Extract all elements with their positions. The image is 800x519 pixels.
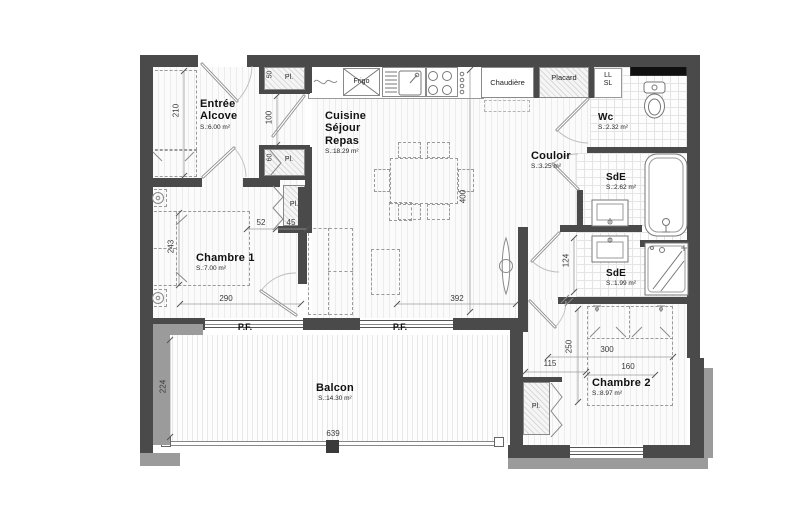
closet-label: Pl. [281, 74, 297, 82]
chair [427, 204, 450, 220]
chair [374, 169, 390, 192]
room-name: SdE [606, 172, 636, 183]
room-label-wc: Wc S.:2.32 m² [598, 112, 628, 131]
chair [427, 142, 450, 158]
wall [690, 358, 704, 458]
dim-392: 392 [442, 294, 472, 303]
dim-210: 210 [172, 96, 181, 126]
room-label-chambre2: Chambre 2 S.:8.97 m² [592, 377, 651, 397]
room-area: S.:14.30 m² [316, 395, 354, 402]
wall [558, 297, 688, 304]
room-label-entree: Entrée Alcove S.:6.00 m² [200, 98, 237, 131]
chair [398, 204, 421, 220]
dim-290: 290 [211, 294, 241, 303]
wall [510, 318, 523, 448]
wall [587, 147, 687, 153]
wall [523, 377, 562, 382]
dim-243: 243 [167, 232, 176, 262]
room-name: Alcove [200, 110, 237, 122]
room-name: Couloir [531, 150, 571, 162]
wall [150, 55, 198, 67]
window-pf-label: P.F. [230, 322, 260, 332]
room-name: Entrée [200, 98, 237, 110]
fridge-label: Frigo [345, 78, 378, 86]
dim-639: 639 [318, 429, 348, 438]
room-area: S.:2.62 m² [606, 184, 636, 191]
dim-300: 300 [592, 345, 622, 354]
window-pf-label: P.F. [385, 322, 415, 332]
washer-label: LL [594, 72, 622, 80]
room-name: SdE [606, 268, 636, 279]
wall [259, 149, 264, 178]
room-label-cuisine: Cuisine Séjour Repas S.:18.29 m² [325, 110, 366, 155]
wall [259, 90, 310, 94]
coffee-table [371, 249, 400, 295]
wall [247, 55, 700, 67]
room-area: S.:8.97 m² [592, 390, 651, 397]
wall [560, 225, 642, 232]
wall [243, 178, 280, 187]
room-name: Repas [325, 135, 366, 147]
floor-plan: Entrée Alcove S.:6.00 m² Cuisine Séjour … [0, 0, 800, 519]
bed-entree-foot [150, 150, 197, 177]
closet-label: Pl. [528, 403, 544, 411]
dim-52: 52 [246, 218, 276, 227]
outer-band [508, 458, 708, 469]
dim-100: 100 [265, 103, 274, 133]
wall [453, 318, 510, 330]
dim-45: 45 [276, 218, 306, 227]
dim-250: 250 [565, 332, 574, 362]
placard-label: Placard [539, 74, 589, 82]
room-area: S.:2.32 m² [598, 124, 628, 131]
outer-band [140, 453, 180, 466]
room-name: Cuisine [325, 110, 366, 122]
wall [640, 240, 687, 247]
dim-50: 50 [267, 60, 274, 90]
bed-chambre1-pillow-line [176, 211, 177, 286]
bed-chambre2-head-line [587, 338, 673, 339]
wall [303, 318, 360, 330]
room-label-sde2: SdE S.:1.99 m² [606, 268, 636, 287]
dim-224: 224 [159, 372, 168, 402]
dim-400: 400 [459, 182, 468, 212]
railing-post-center [326, 440, 339, 453]
room-name: Chambre 2 [592, 377, 651, 389]
room-label-couloir: Couloir S.:3.25 m² [531, 150, 571, 170]
wall [687, 55, 700, 358]
outer-band [704, 368, 713, 458]
room-label-chambre1: Chambre 1 S.:7.00 m² [196, 252, 255, 272]
dim-115: 115 [535, 359, 565, 368]
dim-60: 60 [267, 143, 274, 173]
wall [140, 178, 202, 187]
room-label-sde1: SdE S.:2.62 m² [606, 172, 636, 191]
chaudiere-open-front [484, 100, 530, 112]
room-area: S.:1.99 m² [606, 280, 636, 287]
wall [577, 190, 583, 232]
closet-label: Pl. [281, 156, 297, 164]
room-area: S.:3.25 m² [531, 163, 571, 170]
room-area: S.:18.29 m² [325, 148, 366, 155]
boiler-label: Chaudière [482, 79, 533, 87]
room-area: S.:6.00 m² [200, 124, 237, 131]
room-name: Séjour [325, 122, 366, 134]
chair [398, 142, 421, 158]
bed-chambre2-head-split [629, 306, 630, 338]
closet-label: Pl. [286, 201, 302, 209]
room-name: Chambre 1 [196, 252, 255, 264]
room-area: S.:7.00 m² [196, 265, 255, 272]
wall [140, 55, 153, 453]
wall [534, 67, 539, 98]
dim-160: 160 [613, 362, 643, 371]
room-name: Wc [598, 112, 628, 123]
window-chambre2 [570, 447, 643, 455]
sink-unit [382, 67, 426, 97]
dryer-label: SL [594, 80, 622, 88]
wall [518, 227, 528, 332]
wall [643, 445, 700, 458]
closet-placard [539, 67, 589, 98]
dim-124: 124 [562, 246, 571, 276]
room-label-balcon: Balcon S.:14.30 m² [316, 382, 354, 402]
dining-table [390, 158, 458, 204]
sofa-seat-line [328, 271, 353, 272]
room-name: Balcon [316, 382, 354, 394]
cooktop-unit [426, 67, 458, 97]
railing-post-right [494, 437, 504, 447]
balcony-parapet [153, 324, 203, 335]
